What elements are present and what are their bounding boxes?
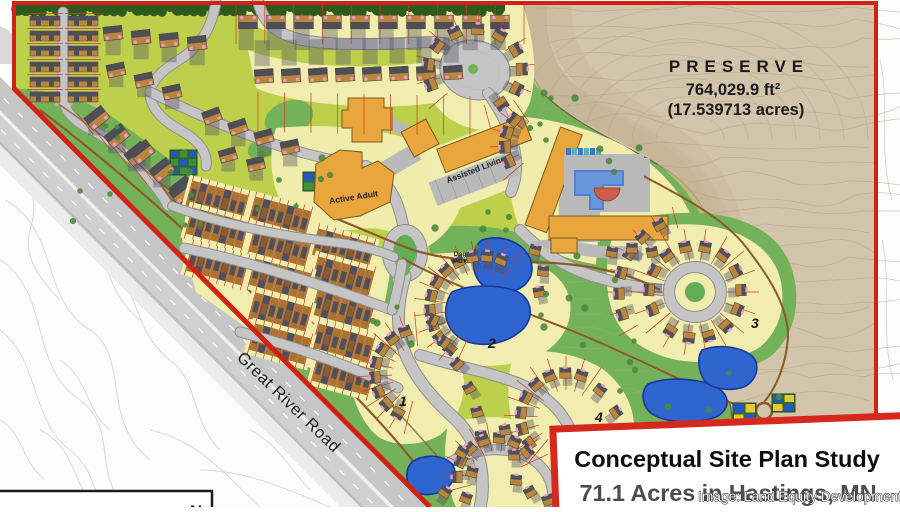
svg-text:N: N [190,502,202,507]
svg-text:Park: Park [453,258,467,265]
svg-text:Conceptual Site Plan Study: Conceptual Site Plan Study [574,446,880,472]
svg-text:3: 3 [751,315,759,331]
svg-text:Dog: Dog [454,251,467,258]
svg-text:(17.539713 acres): (17.539713 acres) [668,101,805,119]
svg-text:1: 1 [399,393,407,409]
svg-text:764,029.9 ft²: 764,029.9 ft² [686,81,781,99]
svg-text:2: 2 [487,335,496,351]
svg-text:4: 4 [594,409,603,425]
svg-text:Image: Land Equity Development: Image: Land Equity Development [698,489,900,504]
svg-text:PRESERVE: PRESERVE [669,57,809,76]
